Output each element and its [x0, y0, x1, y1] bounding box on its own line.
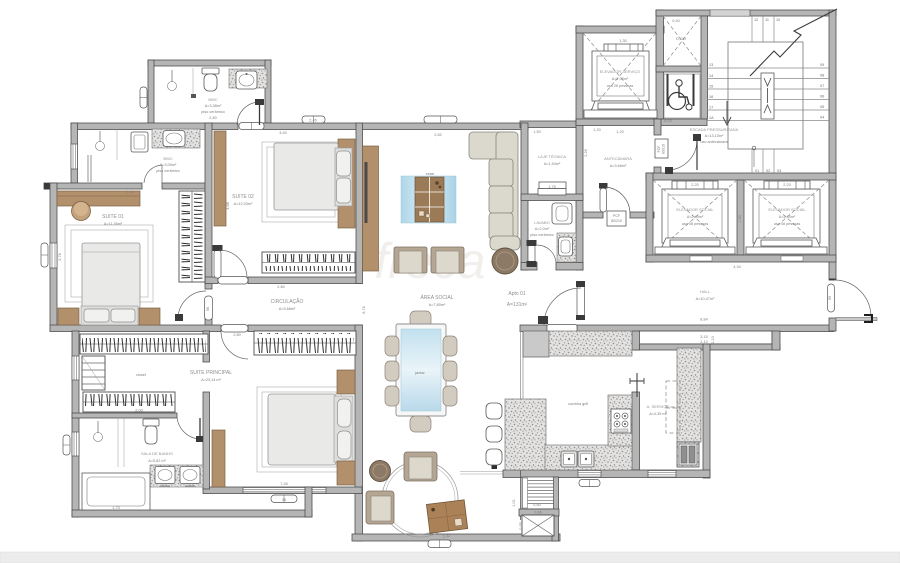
svg-text:cozinha grill: cozinha grill: [568, 402, 588, 406]
svg-text:A=131m²: A=131m²: [507, 302, 528, 308]
svg-text:1,75: 1,75: [548, 185, 555, 189]
svg-text:1,01: 1,01: [512, 499, 516, 506]
svg-text:1,73: 1,73: [112, 506, 119, 510]
svg-text:HALL: HALL: [700, 289, 711, 294]
svg-text:A=7,80m²: A=7,80m²: [429, 303, 446, 307]
svg-text:02: 02: [766, 169, 770, 173]
svg-text:04: 04: [820, 116, 824, 120]
svg-text:0,95: 0,95: [519, 522, 523, 529]
svg-text:6,76: 6,76: [362, 306, 366, 313]
svg-text:jantar: jantar: [414, 371, 425, 375]
svg-text:09: 09: [820, 63, 824, 67]
svg-text:3,40: 3,40: [279, 131, 286, 135]
svg-text:2,80: 2,80: [209, 116, 216, 120]
svg-text:ÁREA SOCIAL: ÁREA SOCIAL: [420, 294, 453, 301]
svg-text:ELEVADOR SOCIAL: ELEVADOR SOCIAL: [768, 207, 806, 212]
svg-text:LAVABO: LAVABO: [534, 220, 549, 225]
svg-text:80/210: 80/210: [611, 219, 622, 223]
svg-text:closet: closet: [136, 373, 147, 377]
svg-text:36: 36: [282, 498, 286, 502]
svg-text:A=4,35 m²: A=4,35 m²: [649, 412, 667, 416]
svg-text:uso 26 pessoas: uso 26 pessoas: [607, 84, 634, 88]
svg-text:2,80: 2,80: [233, 333, 240, 337]
svg-text:A=3,38m²: A=3,38m²: [205, 104, 222, 108]
svg-text:90: 90: [828, 296, 832, 300]
svg-text:SALA DE BANHO: SALA DE BANHO: [141, 451, 173, 456]
svg-text:estar: estar: [426, 172, 435, 176]
svg-text:ANTECÂMARA: ANTECÂMARA: [604, 156, 632, 161]
svg-text:A=5,68m²: A=5,68m²: [279, 307, 296, 311]
svg-text:A=13,13m²: A=13,13m²: [705, 134, 724, 138]
svg-text:Apto 01: Apto 01: [508, 291, 525, 297]
svg-text:14: 14: [709, 74, 713, 78]
svg-text:piso cerâmico: piso cerâmico: [201, 110, 224, 114]
svg-text:16: 16: [709, 95, 713, 99]
svg-text:piso cerâmico: piso cerâmico: [530, 233, 553, 237]
svg-text:PCF: PCF: [613, 214, 620, 218]
svg-text:01: 01: [755, 169, 759, 173]
svg-text:3,58: 3,58: [226, 202, 230, 209]
svg-text:A. SERVIÇO: A. SERVIÇO: [647, 404, 670, 409]
svg-text:uso antecâmara: uso antecâmara: [700, 140, 728, 144]
svg-text:3,15: 3,15: [700, 335, 707, 339]
svg-text:A=12,03m²: A=12,03m²: [234, 202, 253, 206]
svg-text:ESCADA PRESSURIZADA: ESCADA PRESSURIZADA: [690, 127, 739, 132]
svg-text:2,10: 2,10: [700, 340, 707, 344]
svg-text:ELEVADOR SOCIAL: ELEVADOR SOCIAL: [676, 207, 714, 212]
svg-text:2,45: 2,45: [309, 119, 316, 123]
svg-text:80/210: 80/210: [662, 144, 666, 154]
svg-text:freca: freca: [374, 233, 485, 289]
svg-text:05: 05: [820, 105, 824, 109]
svg-text:uso 08 pessoas: uso 08 pessoas: [682, 222, 709, 226]
svg-text:1,60: 1,60: [738, 215, 742, 222]
svg-text:17: 17: [709, 106, 713, 110]
svg-text:PCF: PCF: [657, 146, 661, 153]
svg-text:1A: 1A: [709, 116, 714, 120]
svg-text:A=11,36m²: A=11,36m²: [104, 222, 123, 226]
svg-text:A=3,66m²: A=3,66m²: [610, 164, 627, 168]
svg-text:15: 15: [709, 85, 713, 89]
svg-text:2,82: 2,82: [434, 133, 441, 137]
svg-text:96: 96: [206, 307, 210, 311]
svg-text:D,GO: D,GO: [676, 37, 686, 41]
svg-text:0,66: 0,66: [534, 511, 541, 515]
svg-text:CIRCULAÇÃO: CIRCULAÇÃO: [271, 298, 304, 305]
svg-text:A=23,14 m²: A=23,14 m²: [201, 378, 221, 382]
svg-text:2,80: 2,80: [277, 285, 284, 289]
svg-text:piso cerâmico: piso cerâmico: [156, 169, 179, 173]
svg-text:SUITE PRINCIPAL: SUITE PRINCIPAL: [190, 370, 232, 376]
svg-text:8,84: 8,84: [700, 318, 707, 322]
svg-text:1,30: 1,30: [619, 39, 626, 43]
svg-text:A=5,82 m²: A=5,82 m²: [148, 459, 166, 463]
svg-text:1,20: 1,20: [616, 130, 623, 134]
svg-text:BWC: BWC: [208, 97, 217, 102]
svg-text:7,45: 7,45: [280, 482, 287, 486]
svg-text:11: 11: [765, 18, 769, 22]
svg-text:10: 10: [776, 18, 780, 22]
svg-text:A=2,40m²: A=2,40m²: [687, 215, 704, 219]
svg-text:2,76: 2,76: [58, 253, 62, 260]
svg-text:A=3,00m²: A=3,00m²: [160, 163, 177, 167]
svg-text:13: 13: [709, 63, 713, 67]
svg-text:SUITE 01: SUITE 01: [102, 214, 124, 220]
svg-text:1,10: 1,10: [711, 336, 715, 343]
svg-text:A=2,30m²: A=2,30m²: [612, 77, 629, 81]
svg-text:0,80: 0,80: [533, 503, 540, 507]
svg-text:A=1,94m²: A=1,94m²: [544, 162, 561, 166]
svg-text:4,34: 4,34: [733, 265, 740, 269]
svg-text:0,10: 0,10: [664, 119, 671, 123]
svg-text:A=2,0m²: A=2,0m²: [535, 227, 550, 231]
svg-text:SUITE 02: SUITE 02: [232, 194, 254, 200]
svg-text:LAJE TÉCNICA: LAJE TÉCNICA: [538, 154, 566, 159]
svg-text:2,00: 2,00: [135, 409, 142, 413]
svg-text:03: 03: [777, 169, 781, 173]
svg-text:0,40: 0,40: [672, 19, 679, 23]
svg-text:2,26: 2,26: [584, 149, 588, 156]
svg-text:08: 08: [820, 74, 824, 78]
svg-text:A=10,47m²: A=10,47m²: [696, 297, 715, 301]
svg-text:2,20: 2,20: [783, 183, 790, 187]
svg-text:1,20: 1,20: [593, 128, 600, 132]
svg-text:1,50: 1,50: [533, 130, 540, 134]
svg-text:06: 06: [820, 95, 824, 99]
svg-text:ELEVADOR SERVIÇO: ELEVADOR SERVIÇO: [600, 69, 641, 74]
svg-text:2,55: 2,55: [126, 190, 133, 194]
svg-text:12: 12: [754, 18, 758, 22]
svg-text:A=2,40m²: A=2,40m²: [779, 215, 796, 219]
svg-text:uso 08 pessoas: uso 08 pessoas: [774, 222, 801, 226]
svg-text:BWC: BWC: [163, 156, 172, 161]
svg-text:2,20: 2,20: [691, 183, 698, 187]
svg-text:07: 07: [820, 84, 824, 88]
